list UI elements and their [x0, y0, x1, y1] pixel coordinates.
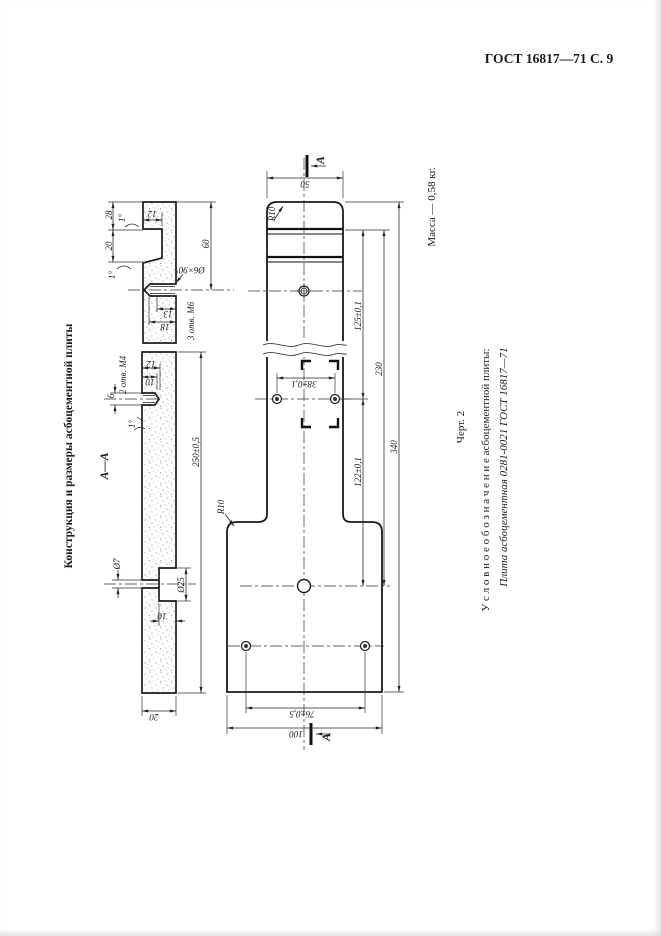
m4-holes-note: 2 отв. М4: [118, 355, 128, 394]
dim-s12: 12: [147, 209, 157, 219]
dim-width-76: 76±0,5: [289, 709, 315, 719]
chamfer-callout: Ø6×90°: [175, 265, 206, 275]
angle-mark-slot: 1°: [107, 271, 117, 280]
dim-s20: 20: [104, 241, 114, 251]
dim-d25: Ø25: [176, 577, 186, 594]
radius-callout-step: R10: [216, 499, 226, 515]
section-label: А—А: [99, 452, 111, 480]
dim-t10: 10: [145, 377, 155, 387]
technical-drawing: ГОСТ 16817—71 С. 9 Конструкция и размеры…: [0, 0, 661, 936]
designation-intro: У с л о в н о е о б о з н а ч е н и е ас…: [480, 349, 492, 612]
dim-length-340: 340: [389, 440, 399, 455]
dim-width-50: 50: [300, 179, 310, 189]
angle-mark-top: 1°: [117, 214, 127, 223]
section-cut-marks: А А: [307, 155, 333, 745]
page-header: ГОСТ 16817—71 С. 9: [485, 51, 614, 66]
dim-length-230: 230: [374, 362, 384, 376]
drawing-title: Конструкция и размеры асбоцементной плит…: [63, 324, 75, 569]
mass-note: Масса — 0,58 кг.: [426, 167, 438, 247]
dim-t13: 13: [163, 309, 173, 319]
dim-s28: 28: [104, 210, 114, 220]
slot-groove-lines: [267, 229, 343, 262]
dim-length-125: 125±0,1: [353, 301, 363, 331]
dim-t12: 12: [146, 359, 156, 369]
dim-cb10: 10: [157, 611, 167, 621]
dim-width-100: 100: [289, 729, 303, 739]
dim-th20: 20: [149, 712, 159, 722]
dim-width-38: 38±0,1: [291, 379, 317, 389]
plan-holes: [242, 283, 370, 651]
angle-mark-lower: 1°: [127, 420, 137, 429]
radius-callout-top: R10: [267, 206, 277, 222]
plan-view: А А: [227, 155, 382, 745]
plate-outline: [227, 202, 382, 692]
dim-h60: 60: [201, 239, 211, 249]
dim-l250: 250±0,5: [191, 437, 201, 467]
m6-holes-note: 3 отв. М6: [186, 301, 196, 341]
dim-t18: 18: [160, 322, 170, 332]
scanned-standard-page: ГОСТ 16817—71 С. 9 Конструкция и размеры…: [0, 0, 661, 936]
mating-part-corner-marks: [302, 361, 338, 427]
designation-text: Плита асбоцементная 0281-0021 ГОСТ 16817…: [498, 347, 510, 587]
center-hole: [298, 580, 311, 593]
dim-length-122: 122±0,1: [353, 457, 363, 487]
dim-d7: Ø7: [112, 558, 122, 570]
cut-mark-bottom-label: А: [321, 733, 333, 742]
figure-caption: Черт. 2: [455, 411, 467, 443]
cut-mark-top-label: А: [315, 156, 327, 165]
dim-d6: 6: [106, 393, 116, 398]
